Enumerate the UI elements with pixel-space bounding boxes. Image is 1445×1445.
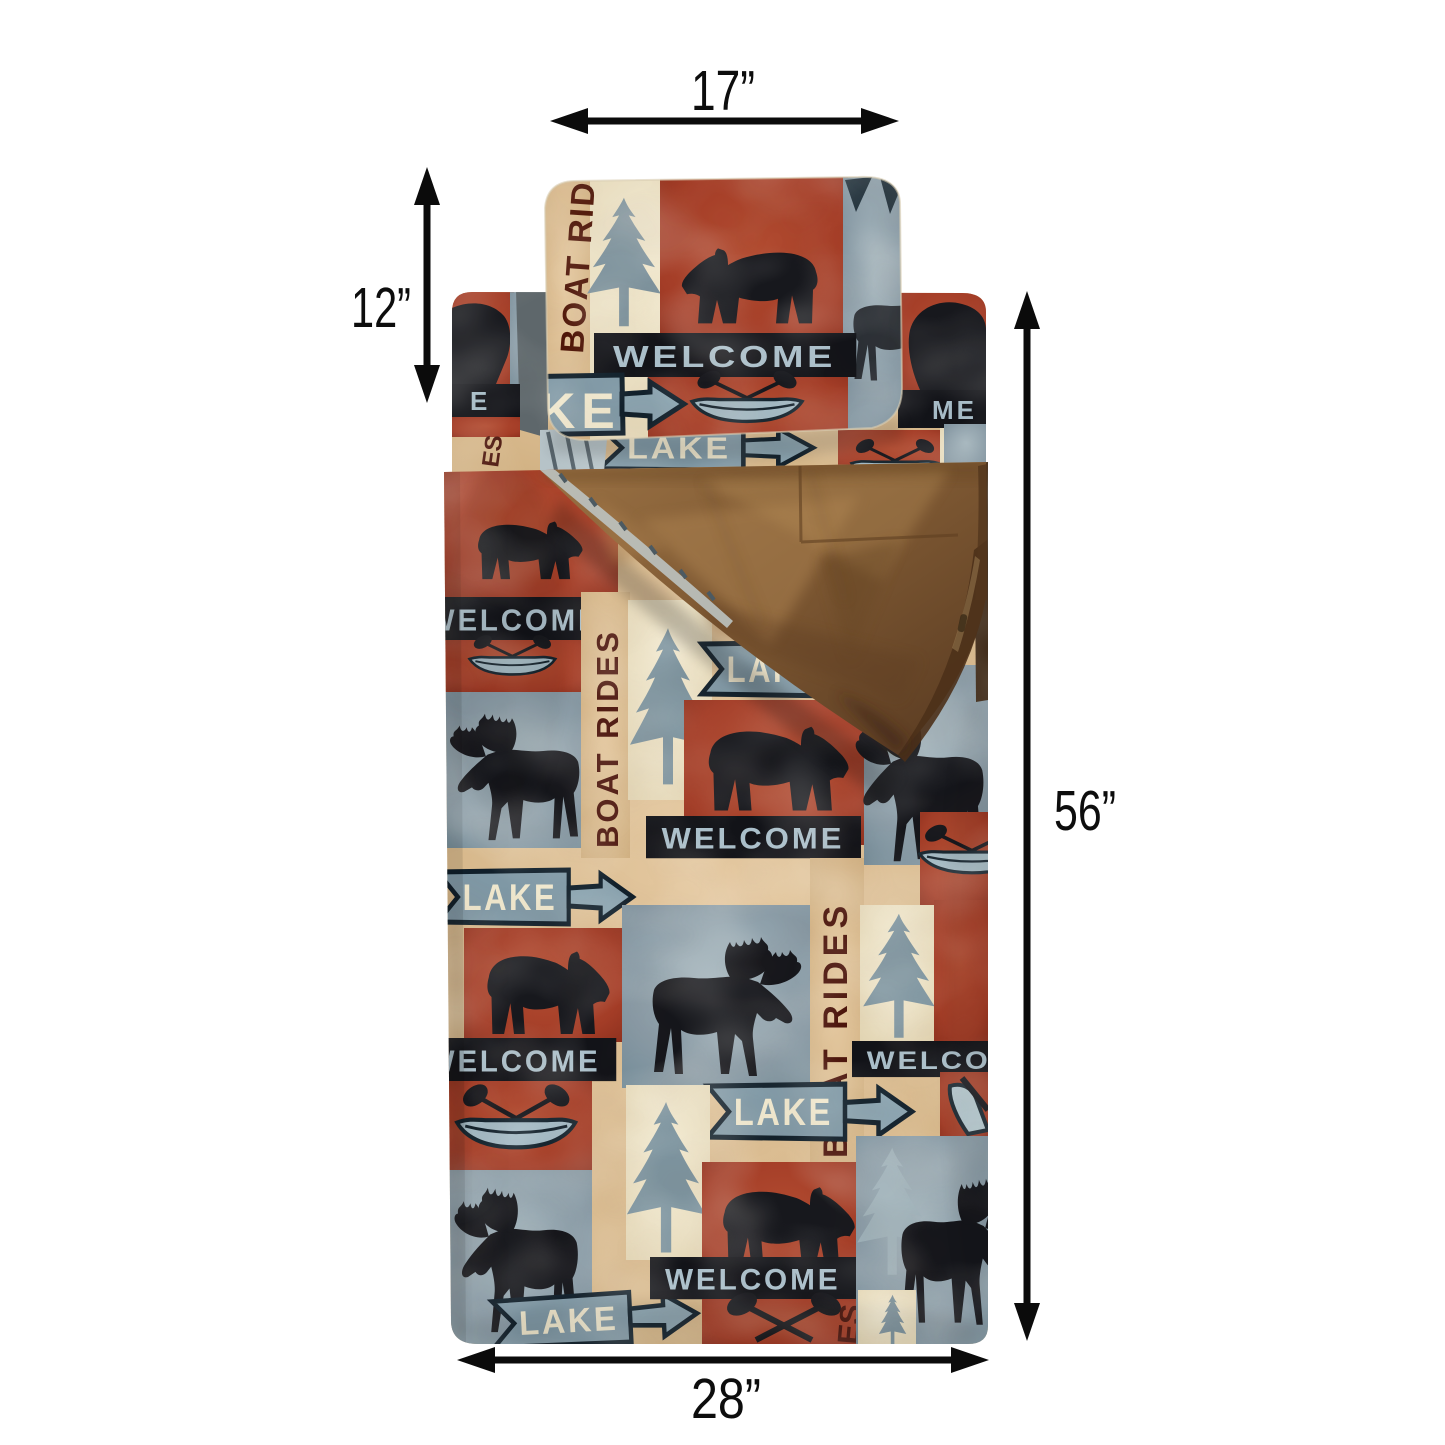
- svg-text:12”: 12”: [351, 276, 411, 340]
- svg-text:56”: 56”: [1054, 779, 1116, 843]
- svg-text:28”: 28”: [691, 1367, 761, 1431]
- svg-text:17”: 17”: [691, 59, 755, 123]
